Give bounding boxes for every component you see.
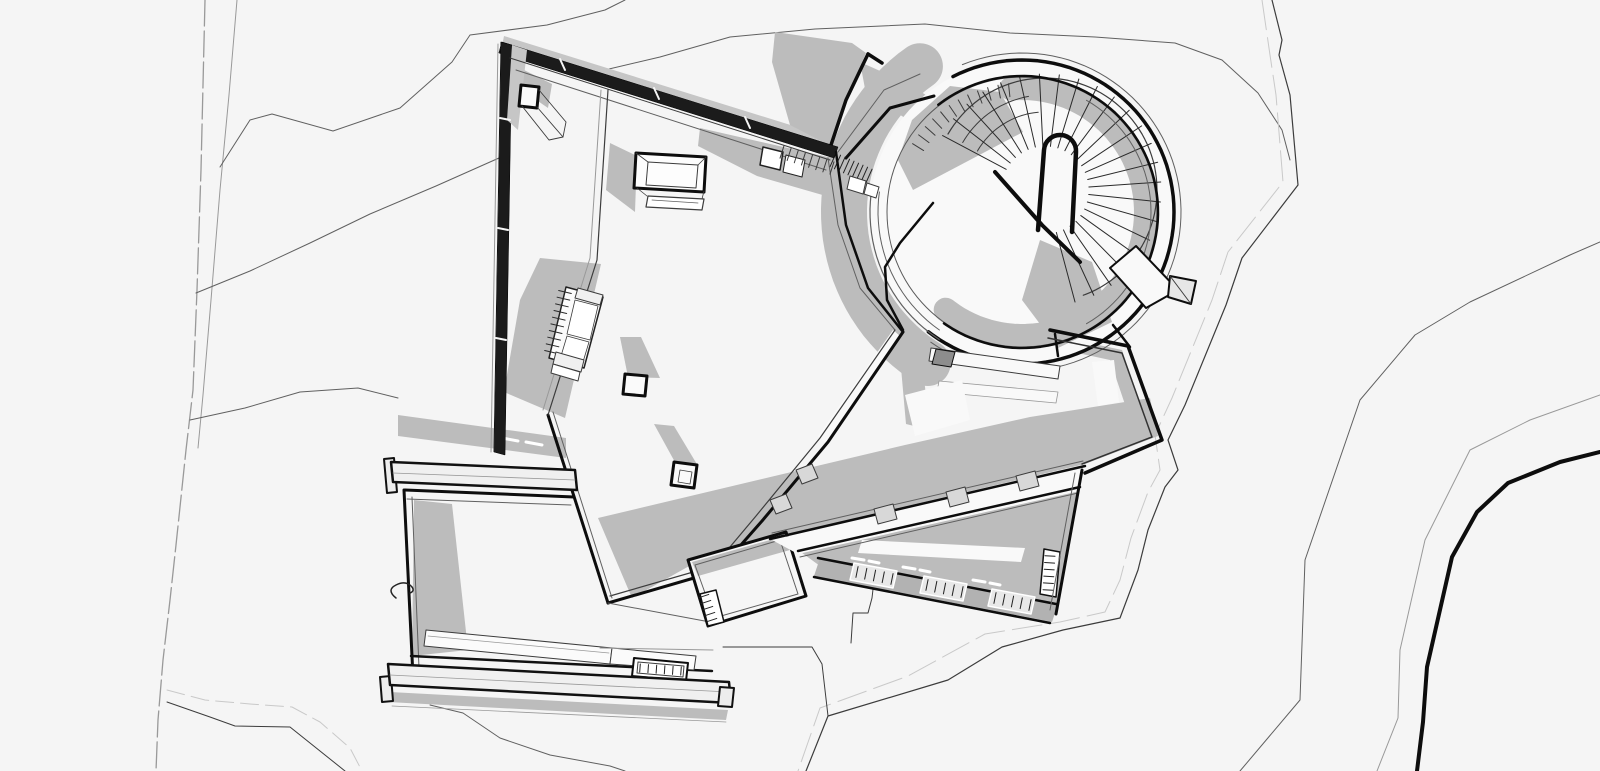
top-beam [391, 462, 577, 490]
floor-grille-hatch [656, 665, 657, 673]
contour-4 [220, 0, 625, 167]
contour-6 [167, 702, 345, 771]
wall-louver-4-hatch [1043, 583, 1053, 584]
floor-grille-hatch [681, 667, 682, 675]
architectural-site-plan [0, 0, 1600, 771]
terrace-top-shadow [398, 415, 566, 458]
contour-8 [430, 705, 625, 771]
cube-c-shadow [654, 424, 698, 466]
contour-3 [196, 158, 499, 293]
wall-dash-3 [903, 567, 915, 569]
cube-b-shadow [620, 337, 660, 378]
contour-5 [190, 388, 398, 420]
wall-louver-4-hatch [1045, 563, 1055, 564]
south-floor-line-1 [608, 603, 710, 622]
cube-b [623, 374, 647, 396]
contour-12 [1240, 242, 1600, 771]
terrace-north-wall [405, 490, 574, 497]
bottom-beam-cap-right [718, 687, 734, 707]
contour-7 [167, 690, 362, 771]
floor-grille-hatch [640, 664, 641, 672]
wall-louver-4-hatch [1044, 569, 1054, 570]
contour-14-bold [1417, 452, 1600, 771]
floor-grille-hatch [673, 666, 674, 674]
wall-dash-1 [852, 558, 864, 560]
cube-c [671, 462, 697, 488]
drawing-canvas [0, 0, 1600, 771]
wall-dash-2 [869, 561, 879, 563]
wall-dash-4 [920, 570, 930, 572]
ne-mullion-a [760, 147, 783, 170]
wall-dash-5 [973, 580, 985, 582]
floor-grille-hatch [648, 665, 649, 673]
terrace-step-1 [723, 647, 828, 716]
walkway-pier [932, 349, 955, 367]
southwest-wall [548, 415, 608, 603]
notch-block [1168, 276, 1196, 304]
contour-1 [156, 0, 205, 771]
box-shadow [606, 143, 637, 212]
wall-louver-4-hatch [1045, 556, 1055, 557]
pentagon-walkway [818, 330, 900, 444]
cube-a [519, 85, 539, 108]
contour-13 [1377, 395, 1600, 771]
funnel-cap [868, 54, 882, 63]
wall-dash-6 [990, 583, 1000, 585]
wall-louver-4-hatch [1043, 590, 1053, 591]
floor-grille-hatch [664, 666, 665, 674]
wall-louver-4-hatch [1044, 576, 1054, 577]
